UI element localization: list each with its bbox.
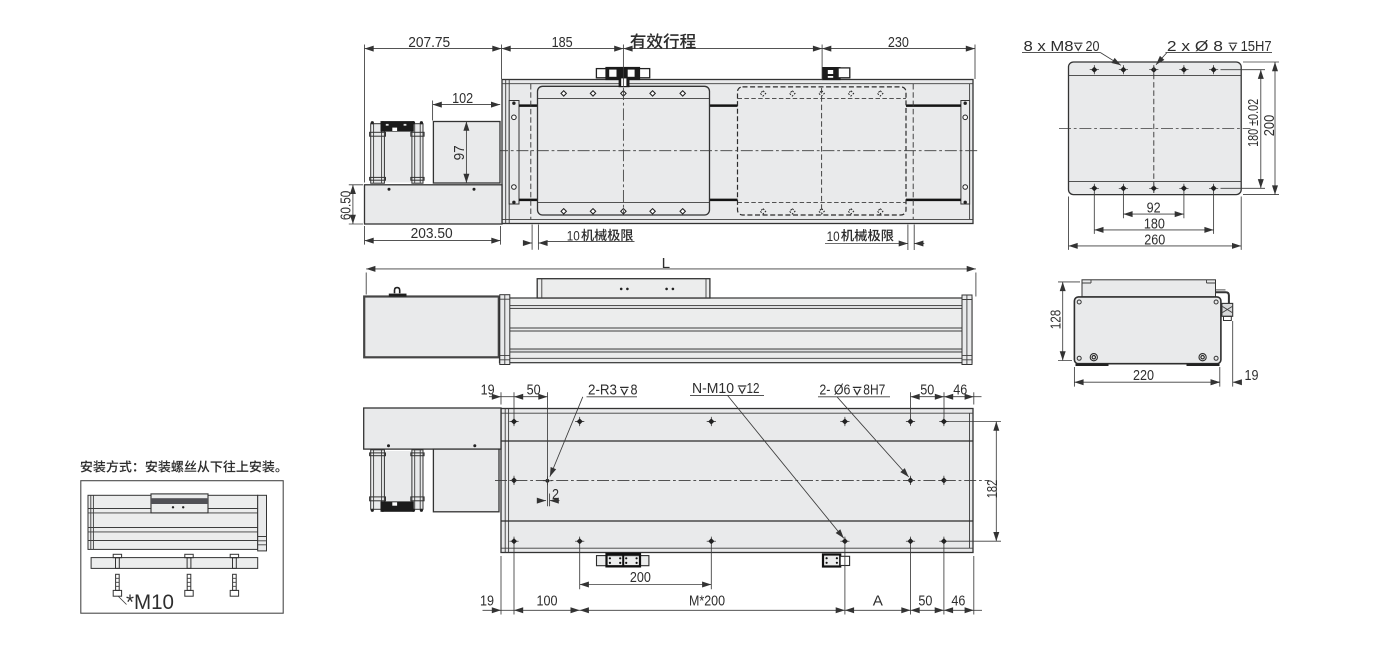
svg-text:260: 260 — [1144, 231, 1165, 248]
svg-text:2: 2 — [552, 486, 559, 503]
svg-text:50: 50 — [527, 382, 541, 399]
svg-text:100: 100 — [537, 592, 558, 609]
svg-text:*M10: *M10 — [126, 590, 174, 614]
svg-text:50: 50 — [920, 382, 934, 399]
svg-text:92: 92 — [1147, 199, 1161, 216]
svg-text:128: 128 — [1047, 310, 1064, 330]
svg-text:180 ±0.02: 180 ±0.02 — [1245, 99, 1262, 147]
svg-text:10: 10 — [567, 229, 580, 244]
svg-text:180: 180 — [1144, 215, 1165, 232]
svg-text:M*200: M*200 — [689, 592, 725, 609]
svg-text:2-R3: 2-R3 — [588, 382, 617, 399]
svg-text:203.50: 203.50 — [411, 225, 453, 242]
svg-text:220: 220 — [1133, 367, 1154, 384]
svg-text:19: 19 — [481, 382, 495, 399]
svg-text:46: 46 — [951, 592, 965, 609]
svg-text:19: 19 — [1245, 367, 1259, 384]
svg-text:185: 185 — [552, 34, 573, 51]
svg-text:2- Ø6: 2- Ø6 — [819, 382, 850, 399]
svg-text:230: 230 — [888, 34, 909, 51]
svg-text:10: 10 — [827, 229, 840, 244]
svg-text:102: 102 — [452, 90, 473, 107]
svg-text:12: 12 — [747, 380, 760, 397]
svg-text:L: L — [662, 255, 670, 272]
svg-text:19: 19 — [480, 592, 494, 609]
svg-text:8: 8 — [631, 382, 638, 399]
svg-text:46: 46 — [953, 382, 967, 399]
svg-text:200: 200 — [1261, 115, 1278, 137]
svg-text:182: 182 — [984, 480, 1001, 499]
svg-text:207.75: 207.75 — [408, 34, 450, 51]
svg-text:50: 50 — [918, 592, 932, 609]
svg-text:60.50: 60.50 — [338, 191, 355, 221]
svg-text:A: A — [873, 592, 884, 609]
svg-text:N-M10: N-M10 — [692, 380, 734, 397]
svg-text:8H7: 8H7 — [863, 382, 885, 399]
svg-text:97: 97 — [451, 145, 468, 160]
svg-text:200: 200 — [630, 569, 651, 586]
